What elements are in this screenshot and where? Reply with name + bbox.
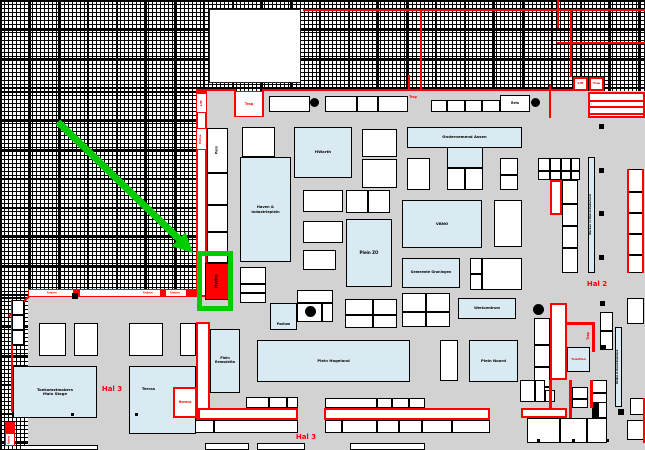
divider — [471, 273, 481, 275]
booth-toekomstmakers-main-stage: Toekomstmakers Main Stage — [13, 366, 97, 418]
booth — [325, 96, 357, 112]
booth-plein-hogeland-label: Plein Hogeland — [258, 341, 409, 381]
pillar — [531, 98, 540, 107]
divider — [629, 233, 643, 235]
marker — [572, 439, 575, 442]
divider — [376, 399, 378, 407]
booth — [598, 402, 607, 418]
booth-toekomstmakers-main-stage-label: Toekomstmakers Main Stage — [14, 367, 96, 417]
booth — [447, 168, 465, 190]
strip-werken-noord-label: Werken in Noord-Nederland — [589, 158, 594, 272]
booth-rein-label: Rein — [501, 96, 529, 111]
pillar — [305, 306, 316, 317]
highlight-frame — [197, 251, 233, 311]
grid-area — [0, 0, 645, 91]
booth — [207, 173, 228, 205]
divider — [346, 314, 396, 316]
marker — [71, 413, 74, 416]
booth-gemeente-groningen: Gemeente Groningen — [402, 258, 460, 288]
entree-cell-label: Entree — [197, 129, 206, 149]
divider — [398, 421, 400, 432]
divider — [391, 399, 393, 407]
booth — [207, 205, 228, 232]
booth — [12, 330, 24, 345]
booth — [465, 100, 482, 112]
booth — [362, 129, 397, 157]
booth-rein: Rein — [500, 95, 530, 112]
floor-plan: LiftTrapLiftEntreeEntreePersHydroReinTra… — [0, 0, 645, 450]
booth — [431, 100, 447, 112]
booth — [346, 190, 368, 213]
booth — [205, 443, 249, 450]
booth-row — [325, 420, 490, 433]
booth — [39, 323, 66, 356]
divider — [629, 191, 643, 193]
divider — [573, 398, 587, 400]
pillar — [310, 98, 319, 107]
lift-cell: Lift — [196, 93, 207, 113]
booth — [257, 443, 305, 450]
divider — [451, 421, 453, 432]
pillar-sq — [618, 409, 624, 415]
lift-box-label: Lift — [575, 79, 586, 89]
booth — [303, 250, 336, 270]
booth — [357, 96, 378, 112]
booth — [447, 100, 465, 112]
red-line — [592, 322, 595, 352]
exit-cell-label: Entree — [6, 434, 14, 445]
marker — [537, 439, 540, 442]
divider — [629, 254, 643, 256]
strip-werken-noord: Werken in Noord-Nederland — [615, 327, 622, 407]
pillar-sq — [599, 255, 604, 260]
booth — [129, 323, 163, 356]
divider — [268, 398, 270, 407]
divider — [590, 113, 643, 115]
corridor — [324, 408, 490, 420]
booth-grid — [538, 158, 580, 180]
booth-plein-noord-label: Plein Noord — [470, 341, 517, 381]
booth — [12, 315, 24, 330]
divider — [570, 159, 572, 179]
band-red — [186, 290, 195, 296]
divider — [563, 225, 577, 227]
booth-plein-zo-label: Plein ZO — [347, 220, 391, 286]
booth — [378, 96, 408, 112]
booth-hwarth: HWarth — [294, 127, 352, 178]
divider — [213, 421, 215, 432]
booth-plein-hogeland: Plein Hogeland — [257, 340, 410, 382]
booth — [440, 340, 458, 381]
red-line — [557, 0, 559, 28]
stairs — [588, 92, 645, 118]
booth — [587, 418, 607, 443]
booth — [470, 258, 482, 290]
booth — [303, 221, 343, 243]
booth — [362, 159, 397, 188]
booth — [180, 323, 196, 356]
marker — [135, 413, 138, 416]
booth-werkcentrum-label: Werkcentrum — [459, 299, 515, 318]
booth-row — [325, 398, 425, 408]
trap-notch-label: Trap — [236, 92, 262, 116]
booth-haven-industrieplein-label: Haven & Industrieplein — [241, 158, 290, 261]
booth-grid — [345, 299, 397, 328]
booth-label: Pers — [208, 129, 227, 172]
booth — [494, 200, 522, 247]
band-red — [160, 290, 166, 296]
divider — [629, 212, 643, 214]
booth-column — [562, 180, 578, 273]
corridor — [521, 408, 567, 418]
divider — [534, 381, 536, 401]
pillar-sq — [601, 345, 606, 350]
divider — [425, 294, 427, 326]
red-line — [642, 169, 644, 273]
divider — [563, 247, 577, 249]
trap-notch: Trap — [235, 91, 263, 117]
marker — [606, 439, 609, 442]
booth-grid — [402, 293, 450, 327]
booth-vbno: VBNO — [402, 200, 482, 248]
red-line — [569, 380, 572, 418]
red-line — [627, 169, 629, 273]
booth-vbno-label: VBNO — [403, 201, 481, 247]
grid-area — [0, 91, 196, 297]
booth — [465, 168, 483, 190]
divider — [421, 421, 423, 432]
booth-gemeente-groningen-label: Gemeente Groningen — [403, 259, 459, 287]
lift-cell-label: Lift — [197, 94, 206, 112]
booth — [368, 190, 390, 213]
divider — [241, 283, 265, 285]
booth — [269, 96, 310, 112]
booth — [407, 158, 430, 190]
booth-plein-eemsdelta: Plein Eemsdelta — [210, 329, 240, 393]
divider — [403, 311, 449, 313]
entree-band — [28, 289, 196, 297]
booth: Pers — [207, 128, 228, 173]
booth — [627, 298, 644, 324]
divider — [321, 304, 323, 321]
pillar-sq — [599, 124, 604, 129]
divider — [341, 421, 343, 432]
exit-cell: Entree — [5, 433, 15, 446]
booth — [74, 323, 98, 356]
toiletten-box: Toiletten — [567, 347, 590, 372]
hall-boundary — [262, 89, 588, 91]
booth — [572, 387, 588, 408]
booth — [297, 290, 333, 303]
corridor-cell — [550, 180, 562, 215]
booth — [482, 258, 522, 290]
booth-ondernemend-assen-stem — [447, 146, 483, 168]
blank-area — [209, 9, 301, 83]
booth-podium: Podium — [270, 303, 297, 330]
divider — [408, 399, 410, 407]
divider — [549, 159, 551, 179]
divider — [563, 203, 577, 205]
red-line — [590, 380, 593, 408]
booth-row — [246, 397, 298, 408]
booth — [520, 380, 545, 402]
red-line — [303, 9, 645, 11]
booth — [500, 158, 518, 190]
booth-hwarth-label: HWarth — [295, 128, 351, 177]
lift-box: Lift — [573, 77, 588, 91]
booth — [534, 318, 550, 345]
booth — [527, 418, 560, 443]
booth — [242, 127, 275, 157]
divider — [560, 159, 562, 179]
divider — [241, 292, 265, 294]
booth — [303, 190, 343, 212]
divider — [539, 170, 579, 172]
pillar-sq — [599, 211, 604, 216]
divider — [501, 174, 517, 176]
booth — [240, 267, 266, 303]
horeca-box-label: Horeca — [175, 389, 195, 416]
corridor — [550, 303, 567, 380]
booth-ondernemend-assen-label: Ondernemend Assen — [408, 128, 521, 147]
divider — [590, 100, 643, 102]
booth — [592, 380, 607, 393]
strip-werken-noord-label: Werken in Noord-Nederland — [616, 328, 621, 406]
trap-box: Trap — [589, 77, 604, 91]
divider — [286, 398, 288, 407]
toiletten-box-label: Toiletten — [568, 348, 589, 371]
booth-row — [195, 420, 298, 433]
booth-werkcentrum: Werkcentrum — [458, 298, 516, 319]
divider — [376, 421, 378, 432]
entree-cell: Entree — [196, 128, 207, 150]
horeca-box: Horeca — [173, 387, 197, 418]
exit-cell — [5, 422, 15, 433]
pillar-sq — [72, 293, 78, 299]
trap-box-label: Trap — [591, 79, 602, 89]
pillar — [533, 304, 544, 315]
pillar-sq — [599, 168, 604, 173]
booth — [20, 445, 98, 450]
red-line — [420, 9, 422, 91]
red-line — [570, 9, 572, 77]
corridor — [198, 408, 298, 420]
booth-ondernemend-assen: Ondernemend Assen — [407, 127, 522, 148]
booth — [534, 345, 550, 367]
divider — [590, 106, 643, 108]
booth — [482, 100, 500, 112]
booth-haven-industrieplein: Haven & Industrieplein — [240, 157, 291, 262]
pillar-sq — [600, 301, 605, 306]
red-line — [549, 380, 552, 408]
booth — [350, 443, 425, 450]
booth — [12, 300, 24, 315]
booth — [600, 312, 613, 331]
booth-plein-noord: Plein Noord — [469, 340, 518, 382]
strip-werken-noord: Werken in Noord-Nederland — [588, 157, 595, 273]
booth-plein-eemsdelta-label: Plein Eemsdelta — [211, 330, 239, 392]
booth-plein-zo: Plein ZO — [346, 219, 392, 287]
red-line — [567, 322, 595, 325]
